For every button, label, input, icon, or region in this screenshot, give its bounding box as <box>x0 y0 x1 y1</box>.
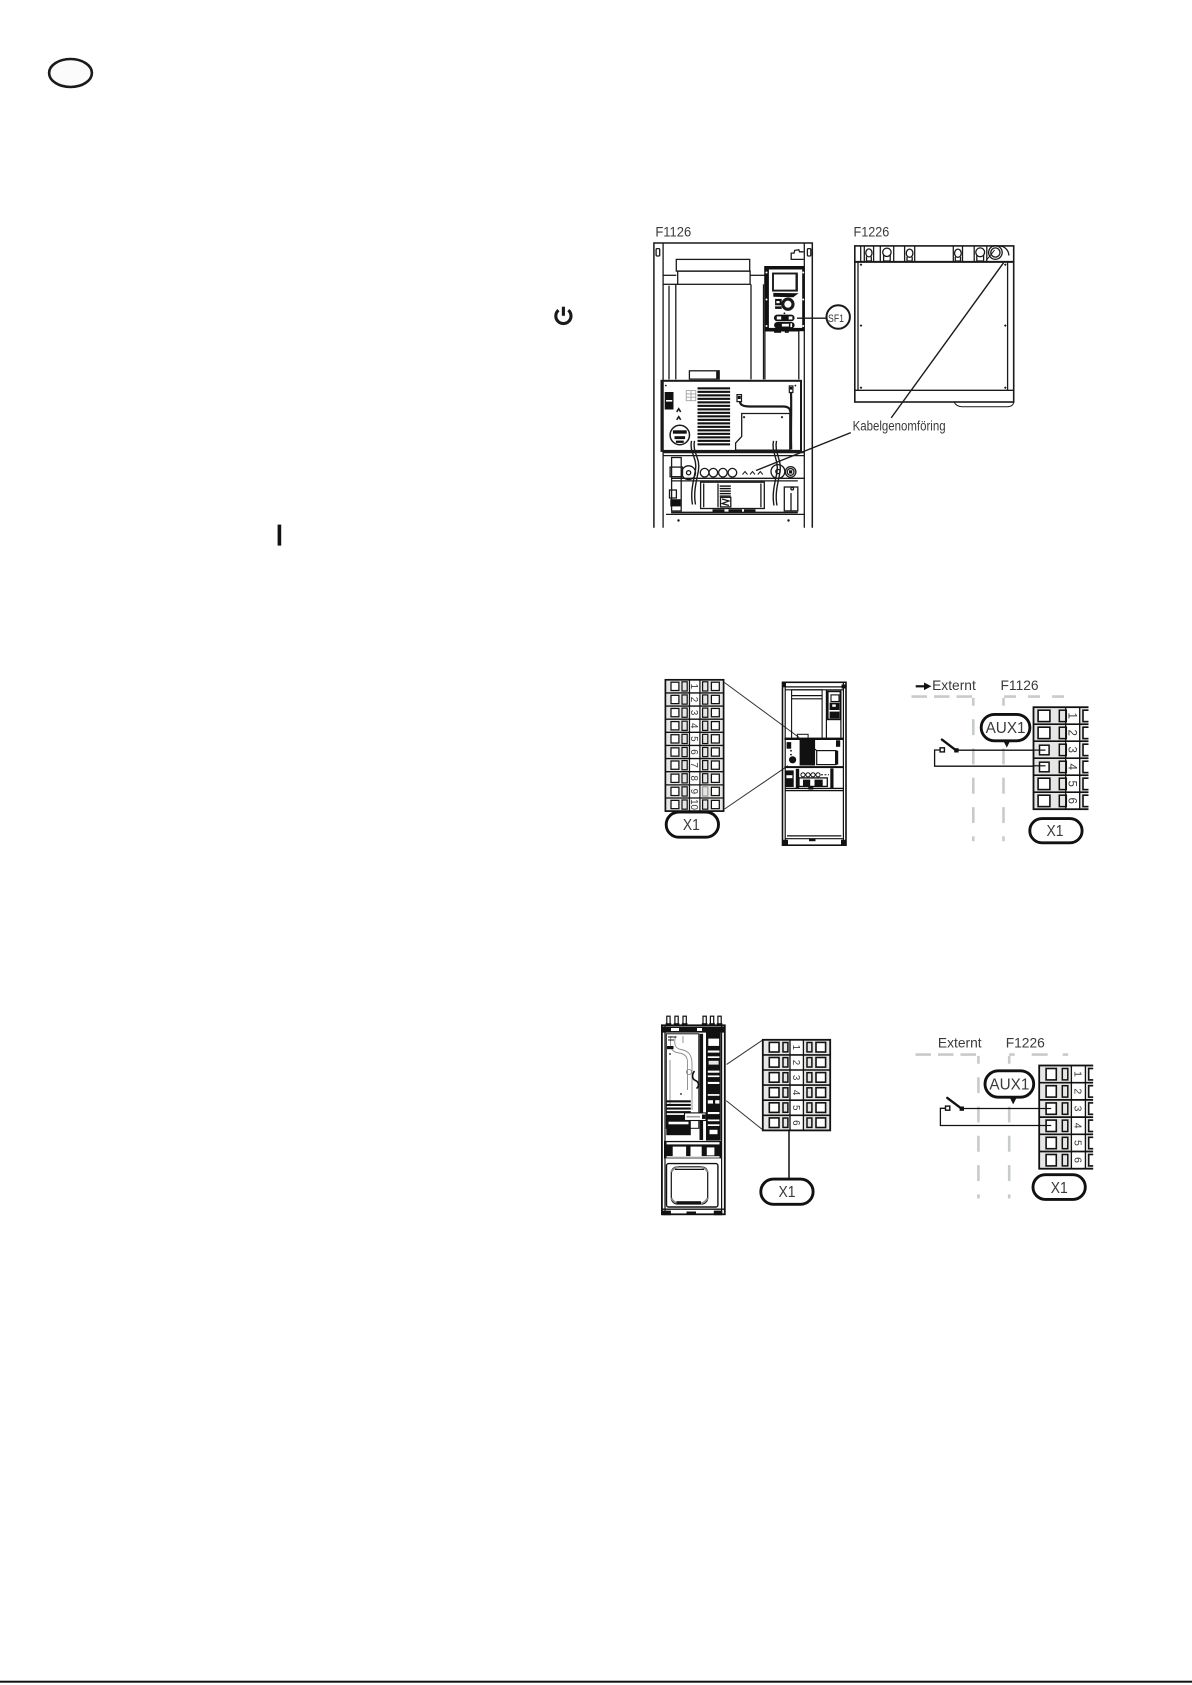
svg-text:3: 3 <box>790 1075 801 1081</box>
svg-text:2: 2 <box>1066 729 1078 735</box>
svg-text:3: 3 <box>1072 1106 1084 1112</box>
svg-text:F1226: F1226 <box>854 225 890 241</box>
svg-text:AUX1: AUX1 <box>989 1077 1029 1094</box>
svg-text:X1: X1 <box>683 817 700 834</box>
svg-text:6: 6 <box>1066 797 1078 803</box>
svg-text:F1226: F1226 <box>1006 1036 1045 1051</box>
svg-text:2: 2 <box>790 1060 801 1065</box>
svg-text:6: 6 <box>1072 1157 1084 1163</box>
svg-text:6: 6 <box>790 1120 801 1126</box>
svg-text:4: 4 <box>1066 763 1078 770</box>
svg-text:SF1: SF1 <box>828 313 844 325</box>
svg-text:F1126: F1126 <box>1001 678 1039 693</box>
svg-text:X1: X1 <box>779 1184 796 1201</box>
svg-text:Externt: Externt <box>932 678 976 693</box>
svg-text:AUX1: AUX1 <box>986 720 1026 737</box>
svg-text:X1: X1 <box>1051 1180 1068 1197</box>
svg-text:5: 5 <box>1072 1140 1084 1146</box>
svg-text:F1126: F1126 <box>655 225 691 241</box>
svg-text:Externt: Externt <box>938 1036 982 1051</box>
svg-text:3: 3 <box>1066 746 1078 752</box>
svg-text:X1: X1 <box>1047 823 1064 840</box>
svg-text:1: 1 <box>1066 712 1078 718</box>
svg-text:4: 4 <box>1072 1123 1084 1129</box>
svg-text:1: 1 <box>1072 1071 1084 1077</box>
svg-text:5: 5 <box>1066 780 1078 786</box>
svg-text:5: 5 <box>790 1105 801 1111</box>
svg-text:4: 4 <box>790 1090 801 1096</box>
svg-text:1: 1 <box>790 1045 801 1050</box>
svg-text:2: 2 <box>1072 1088 1084 1094</box>
svg-text:Kabelgenomföring: Kabelgenomföring <box>853 419 946 434</box>
